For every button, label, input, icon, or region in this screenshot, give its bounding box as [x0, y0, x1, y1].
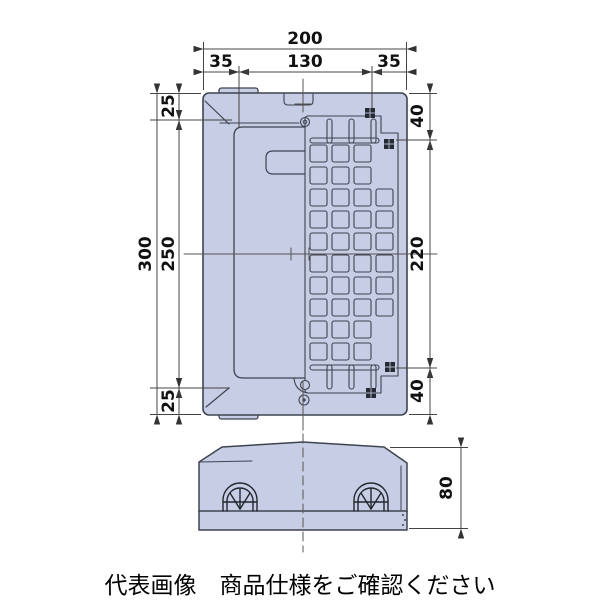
dim-right-bottom: 40	[408, 379, 428, 403]
dim-width-right: 35	[377, 52, 401, 72]
dim-side-height: 80	[437, 476, 457, 500]
knockout-marker	[367, 389, 376, 398]
dim-height-bottom: 25	[159, 389, 179, 413]
technical-drawing-page: 200 35 130 35 300 25 250 25 40 220 40 80…	[0, 0, 600, 600]
plan-view	[184, 79, 437, 430]
technical-drawing: 200 35 130 35 300 25 250 25 40 220 40 80	[0, 0, 600, 600]
hinge-ring-bottom	[301, 381, 310, 390]
side-view	[199, 434, 407, 552]
dim-height-center: 250	[159, 236, 179, 272]
knockout-marker	[366, 109, 375, 118]
dim-right-top: 40	[408, 104, 428, 128]
latch-tab	[266, 151, 305, 174]
knockout-marker	[386, 363, 395, 372]
dim-width-total: 200	[287, 29, 323, 49]
dim-height-total: 300	[136, 236, 156, 272]
dim-width-center: 130	[287, 52, 323, 72]
caption-note: 代表画像 商品仕様をご確認ください	[0, 566, 600, 600]
dim-height-top: 25	[159, 94, 179, 118]
knockout-marker	[385, 140, 394, 149]
dim-width-left: 35	[209, 52, 233, 72]
dim-right-center: 220	[408, 236, 428, 272]
